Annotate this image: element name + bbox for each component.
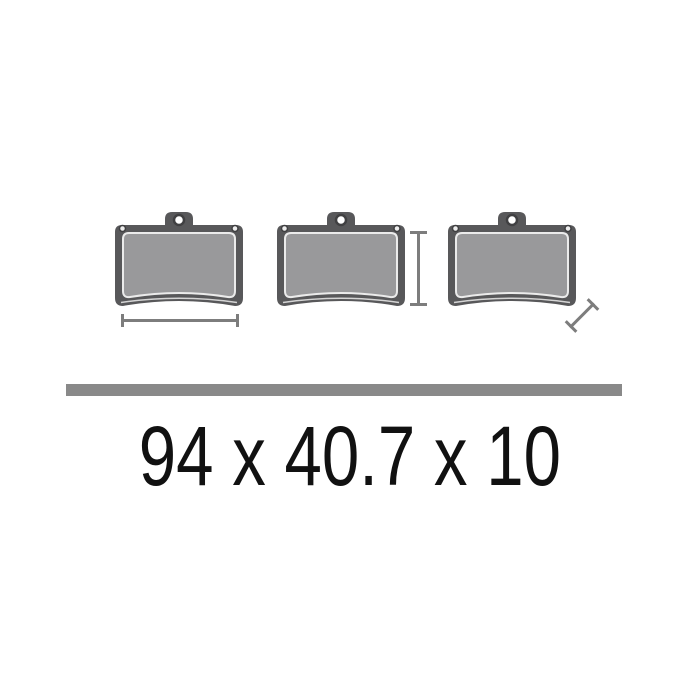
product-dimensions-text: 94 x 40.7 x 10 bbox=[139, 414, 561, 498]
product-illustration: 94 x 40.7 x 10 bbox=[0, 0, 700, 700]
brake-pad-3-icon bbox=[448, 210, 576, 310]
marker-end-cap bbox=[410, 303, 427, 306]
marker-line bbox=[121, 319, 239, 322]
divider-bar bbox=[66, 384, 622, 396]
marker-line bbox=[417, 231, 420, 306]
brake-pad-2-icon bbox=[277, 210, 405, 310]
height-dimension-marker-icon bbox=[410, 231, 427, 306]
marker-end-cap bbox=[236, 314, 239, 327]
product-dimensions: 94 x 40.7 x 10 bbox=[0, 414, 700, 498]
brake-pad-1-icon bbox=[115, 210, 243, 310]
width-dimension-marker-icon bbox=[121, 314, 239, 327]
